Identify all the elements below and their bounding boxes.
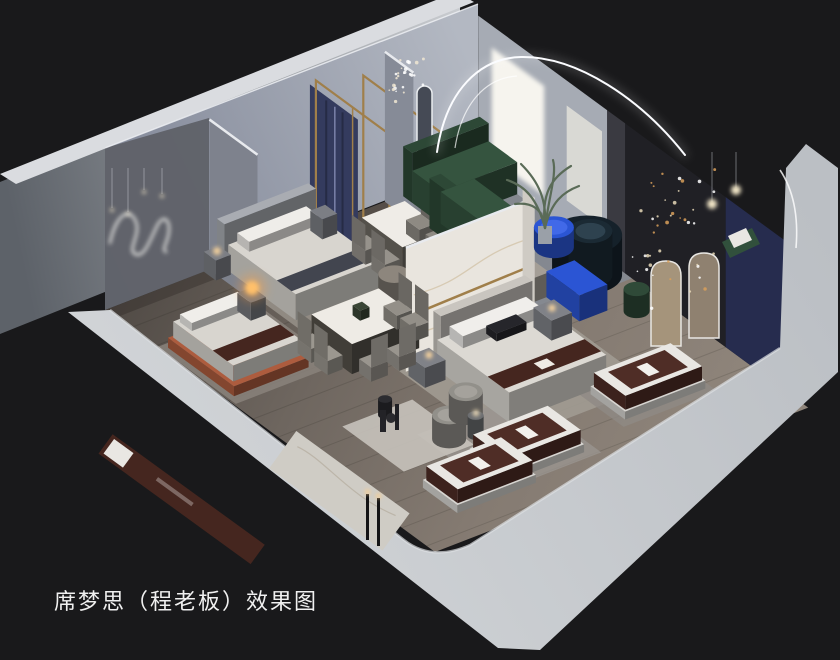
swivel-table-lamp (473, 410, 479, 416)
candle-lamp-2 (377, 498, 380, 546)
arch-mirror-1 (651, 261, 681, 346)
showroom-render (0, 0, 840, 660)
lamp-bed2 (213, 247, 221, 255)
accent-chair-green (624, 282, 650, 318)
arch-mirror-2 (689, 253, 719, 338)
caption-text: 席梦思（程老板）效果图 (54, 584, 318, 616)
vase-2 (386, 413, 396, 423)
lamp-bed3-right (549, 305, 556, 312)
vase-3 (395, 404, 399, 430)
lamp-orb-bed1 (245, 281, 259, 295)
lamp-bed3-left (426, 352, 433, 359)
candle-flame-2 (376, 494, 381, 499)
candle-lamp-1 (366, 494, 369, 540)
render-viewport: 席梦思（程老板）效果图 (0, 0, 840, 660)
vase-1 (380, 410, 386, 432)
candle-flame-1 (365, 490, 370, 495)
